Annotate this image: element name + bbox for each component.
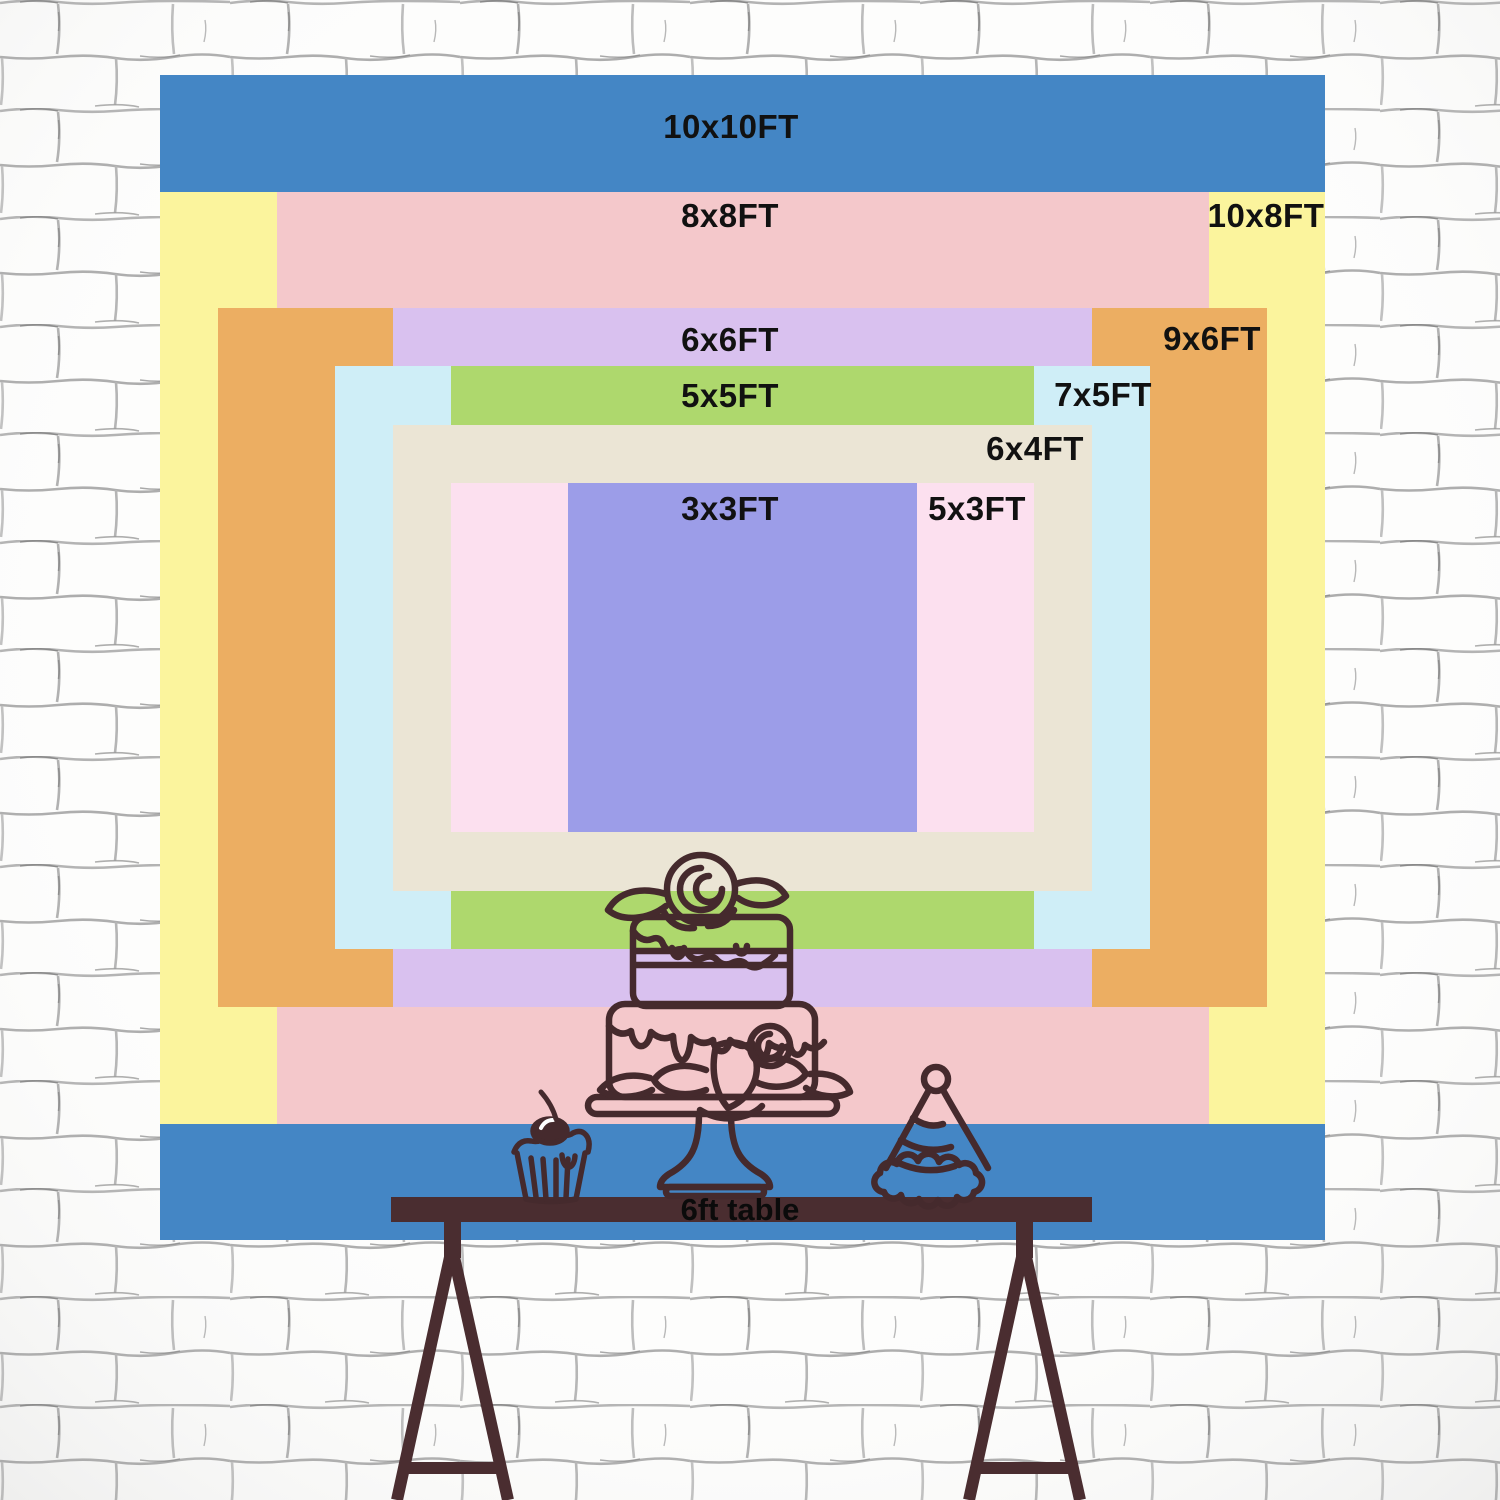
size-label-6x4ft: 6x4FT (986, 430, 1084, 468)
size-label-9x6ft: 9x6FT (1163, 320, 1261, 358)
size-label-8x8ft: 8x8FT (681, 197, 779, 235)
backdrop-size-chart: 10x10FT10x8FT8x8FT9x6FT6x6FT7x5FT5x5FT6x… (0, 0, 1500, 1500)
size-label-6x6ft: 6x6FT (681, 321, 779, 359)
table-label: 6ft table (681, 1192, 800, 1228)
size-label-10x8ft: 10x8FT (1208, 197, 1325, 235)
size-label-10x10ft: 10x10FT (663, 108, 799, 146)
size-label-5x5ft: 5x5FT (681, 377, 779, 415)
size-label-3x3ft: 3x3FT (681, 490, 779, 528)
size-labels-layer: 10x10FT10x8FT8x8FT9x6FT6x6FT7x5FT5x5FT6x… (0, 0, 1500, 1500)
size-label-5x3ft: 5x3FT (928, 490, 1026, 528)
size-label-7x5ft: 7x5FT (1054, 376, 1152, 414)
